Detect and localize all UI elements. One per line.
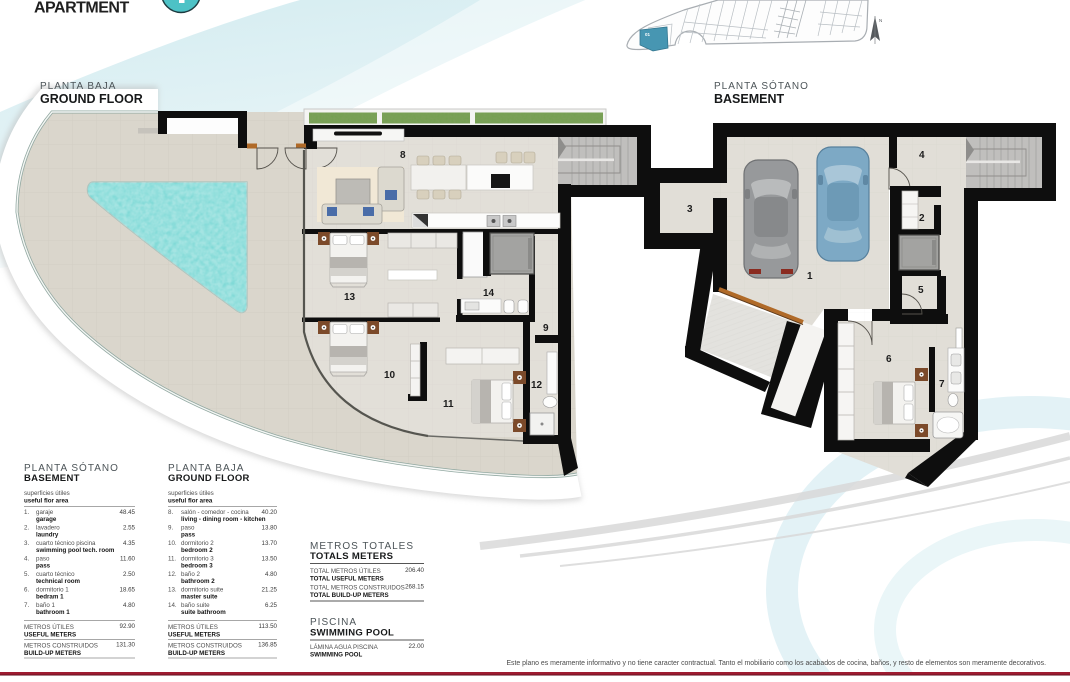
svg-text:bedram 1: bedram 1 <box>36 594 64 601</box>
svg-text:01: 01 <box>645 32 651 37</box>
svg-text:suite bathroom: suite bathroom <box>181 609 226 616</box>
svg-text:3.: 3. <box>24 540 29 547</box>
svg-text:PISCINA: PISCINA <box>310 617 357 628</box>
svg-text:dormitorio 3: dormitorio 3 <box>181 556 214 563</box>
svg-text:10: 10 <box>384 370 396 381</box>
svg-text:SWIMMING POOL: SWIMMING POOL <box>310 628 394 639</box>
svg-text:technical room: technical room <box>36 578 81 585</box>
svg-text:3: 3 <box>687 204 693 215</box>
svg-text:6.: 6. <box>24 587 29 594</box>
svg-text:131.30: 131.30 <box>116 642 135 649</box>
svg-text:pass: pass <box>36 563 51 570</box>
svg-text:206.40: 206.40 <box>405 567 424 574</box>
svg-text:BUILD-UP METERS: BUILD-UP METERS <box>168 650 225 657</box>
svg-text:SWIMMING POOL: SWIMMING POOL <box>310 652 362 659</box>
svg-text:4: 4 <box>919 150 925 161</box>
svg-text:9.: 9. <box>168 525 173 532</box>
svg-text:92.90: 92.90 <box>120 623 136 630</box>
svg-text:1.: 1. <box>24 509 29 516</box>
svg-text:7: 7 <box>939 379 945 390</box>
svg-text:TOTAL BUILD-UP METERS: TOTAL BUILD-UP METERS <box>310 592 389 599</box>
svg-text:BASEMENT: BASEMENT <box>24 473 80 484</box>
svg-text:bathroom 2: bathroom 2 <box>181 578 215 585</box>
svg-text:13.: 13. <box>168 587 177 594</box>
svg-text:superficies útiles: superficies útiles <box>24 490 70 497</box>
svg-text:TOTAL METROS ÚTILES: TOTAL METROS ÚTILES <box>310 568 381 575</box>
svg-text:11.60: 11.60 <box>120 556 136 563</box>
svg-text:13: 13 <box>344 292 356 303</box>
svg-text:TOTALS METERS: TOTALS METERS <box>310 551 393 562</box>
svg-text:12.: 12. <box>168 571 177 578</box>
svg-text:18.65: 18.65 <box>120 587 136 594</box>
svg-text:laundry: laundry <box>36 532 59 539</box>
svg-text:21.25: 21.25 <box>262 587 278 594</box>
svg-text:METROS CONSTRUIDOS: METROS CONSTRUIDOS <box>24 643 98 650</box>
svg-text:bedroom 3: bedroom 3 <box>181 563 213 570</box>
svg-text:dormitorio 2: dormitorio 2 <box>181 540 214 547</box>
svg-text:paso: paso <box>181 525 195 532</box>
svg-text:10.: 10. <box>168 540 177 547</box>
svg-text:4.80: 4.80 <box>265 571 278 578</box>
svg-text:master suite: master suite <box>181 594 218 601</box>
svg-text:PLANTA SÓTANO: PLANTA SÓTANO <box>714 79 809 92</box>
svg-text:9: 9 <box>543 323 549 334</box>
svg-text:113.50: 113.50 <box>259 623 278 630</box>
svg-text:5: 5 <box>918 285 924 296</box>
svg-text:13.50: 13.50 <box>262 556 278 563</box>
svg-text:Este plano es meramente inform: Este plano es meramente informativo y no… <box>506 660 1046 667</box>
svg-text:136.85: 136.85 <box>258 642 277 649</box>
svg-text:48.45: 48.45 <box>120 509 136 516</box>
svg-text:METROS CONSTRUIDOS: METROS CONSTRUIDOS <box>168 643 242 650</box>
svg-text:lavadero: lavadero <box>36 525 60 532</box>
svg-text:GROUND FLOOR: GROUND FLOOR <box>40 92 143 106</box>
svg-text:4.35: 4.35 <box>123 540 136 547</box>
svg-text:dormitorio 1: dormitorio 1 <box>36 587 69 594</box>
svg-text:USEFUL METERS: USEFUL METERS <box>24 632 76 639</box>
svg-text:garage: garage <box>36 516 57 523</box>
svg-text:6: 6 <box>886 354 892 365</box>
svg-text:bathroom 1: bathroom 1 <box>36 609 70 616</box>
svg-text:1: 1 <box>807 271 813 282</box>
svg-text:4.80: 4.80 <box>123 602 136 609</box>
svg-text:dormitorio suite: dormitorio suite <box>181 587 224 594</box>
svg-text:14.: 14. <box>168 602 177 609</box>
svg-text:12: 12 <box>531 380 543 391</box>
svg-text:TOTAL USEFUL METERS: TOTAL USEFUL METERS <box>310 576 384 583</box>
svg-text:baño suite: baño suite <box>181 602 210 609</box>
svg-text:BUILD-UP METERS: BUILD-UP METERS <box>24 650 81 657</box>
svg-text:baño 2: baño 2 <box>181 571 200 578</box>
svg-text:cuarto técnico: cuarto técnico <box>36 571 75 578</box>
svg-text:useful flor area: useful flor area <box>168 498 213 505</box>
svg-text:2.: 2. <box>24 525 29 532</box>
svg-text:APARTMENT: APARTMENT <box>34 0 129 17</box>
svg-text:garaje: garaje <box>36 509 54 516</box>
svg-text:268.15: 268.15 <box>405 584 424 591</box>
svg-text:14: 14 <box>483 288 495 299</box>
svg-text:2: 2 <box>919 213 925 224</box>
svg-text:4.: 4. <box>24 556 29 563</box>
svg-text:11: 11 <box>443 399 454 410</box>
svg-text:2.55: 2.55 <box>123 525 136 532</box>
svg-text:2.50: 2.50 <box>123 571 136 578</box>
svg-text:5.: 5. <box>24 571 29 578</box>
svg-text:living - dining room - kitchen: living - dining room - kitchen <box>181 516 266 523</box>
svg-text:40.20: 40.20 <box>262 509 278 516</box>
svg-text:pass: pass <box>181 532 196 539</box>
svg-text:swimming pool tech. room: swimming pool tech. room <box>36 547 115 554</box>
svg-text:PLANTA BAJA: PLANTA BAJA <box>40 81 116 92</box>
svg-text:BASEMENT: BASEMENT <box>714 92 785 106</box>
svg-text:USEFUL METERS: USEFUL METERS <box>168 632 220 639</box>
svg-text:LÁMINA AGUA PISCINA: LÁMINA AGUA PISCINA <box>310 644 379 651</box>
svg-text:13.80: 13.80 <box>262 525 278 532</box>
svg-text:METROS ÚTILES: METROS ÚTILES <box>24 624 74 631</box>
svg-text:11.: 11. <box>168 556 176 563</box>
svg-text:METROS ÚTILES: METROS ÚTILES <box>168 624 218 631</box>
svg-text:8.: 8. <box>168 509 173 516</box>
svg-text:GROUND FLOOR: GROUND FLOOR <box>168 473 250 484</box>
svg-text:bedroom 2: bedroom 2 <box>181 547 213 554</box>
svg-text:7.: 7. <box>24 602 29 609</box>
svg-text:8: 8 <box>400 150 406 161</box>
svg-text:cuarto técnico piscina: cuarto técnico piscina <box>36 540 96 547</box>
svg-text:13.70: 13.70 <box>262 540 278 547</box>
svg-text:paso: paso <box>36 556 50 563</box>
svg-text:superficies útiles: superficies útiles <box>168 490 214 497</box>
svg-text:N: N <box>879 18 882 23</box>
svg-text:useful flor area: useful flor area <box>24 498 69 505</box>
svg-text:salón - comedor - cocina: salón - comedor - cocina <box>181 509 249 516</box>
svg-text:6.25: 6.25 <box>265 602 278 609</box>
svg-text:TOTAL METROS CONSTRUIDOS: TOTAL METROS CONSTRUIDOS <box>310 585 405 592</box>
svg-text:22.00: 22.00 <box>409 643 425 650</box>
svg-text:baño 1: baño 1 <box>36 602 55 609</box>
